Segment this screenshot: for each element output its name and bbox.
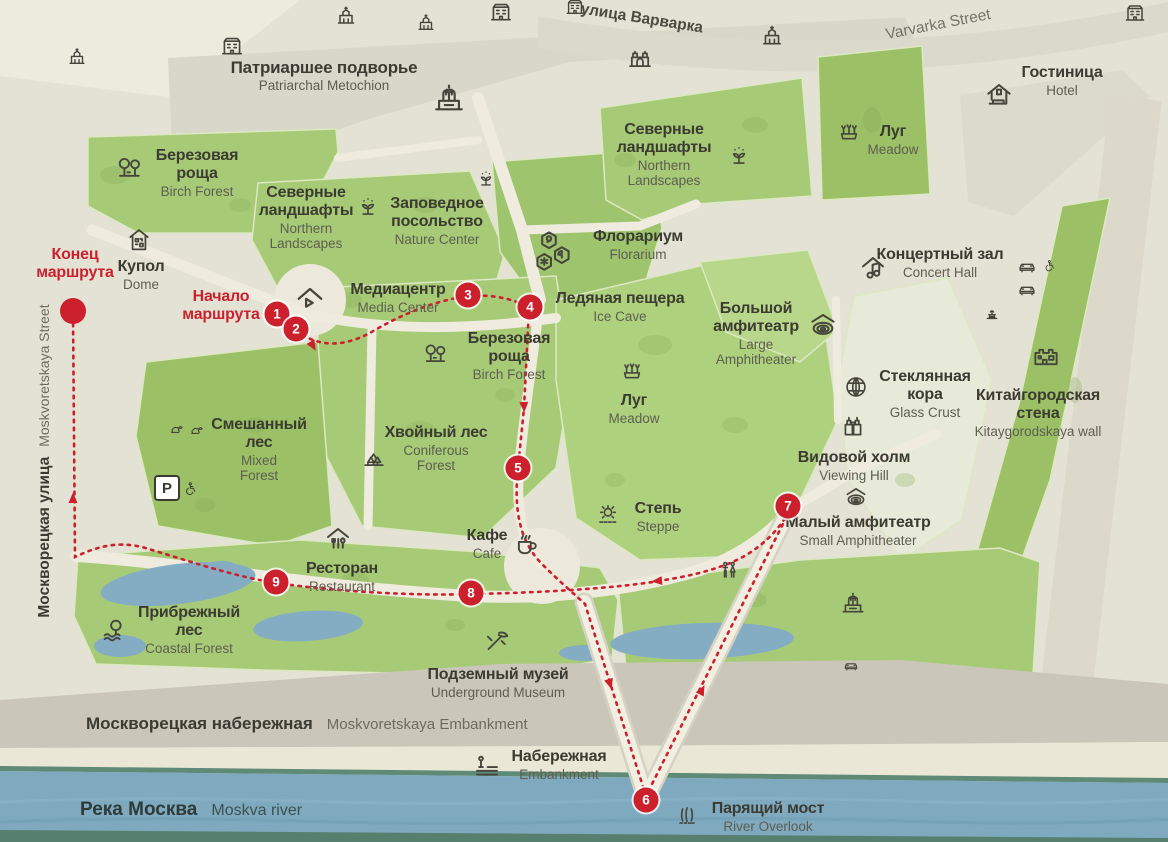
cathedral-icon xyxy=(432,81,466,115)
wc-icon xyxy=(717,559,741,583)
poi-embankment: НабережнаяEmbankment xyxy=(512,748,607,782)
car-icon xyxy=(1016,279,1038,301)
route-marker-5[interactable]: 5 xyxy=(506,456,531,481)
poi-meadow-ne: ЛугMeadow xyxy=(867,123,918,157)
poi-birch-forest-center: Березовая рощаBirch Forest xyxy=(454,330,564,382)
zaryadye-park-map: P улица Варварка Varvarka Street Москвор… xyxy=(0,0,1168,842)
church-icon xyxy=(66,45,88,67)
meadow-flowers-icon xyxy=(836,119,862,145)
poi-underground-museum: Подземный музейUnderground Museum xyxy=(427,666,568,700)
fortress-wall-icon xyxy=(1031,341,1061,371)
route-marker-6[interactable]: 6 xyxy=(634,788,659,813)
building-icon xyxy=(1123,0,1147,24)
building-icon xyxy=(219,32,245,58)
route-marker-3[interactable]: 3 xyxy=(456,283,481,308)
parking-icon: P xyxy=(154,475,180,501)
poi-coastal-forest: Прибрежный лесCoastal Forest xyxy=(124,604,254,656)
poi-dome: КуполDome xyxy=(118,258,165,292)
route-end-point xyxy=(60,298,86,324)
church-icon xyxy=(840,590,866,616)
sprout-icon xyxy=(726,143,752,169)
binoculars-icon xyxy=(839,413,867,441)
route-marker-4[interactable]: 4 xyxy=(518,295,543,320)
media-play-icon xyxy=(292,283,328,319)
poi-birch-forest-nw: Березовая рощаBirch Forest xyxy=(142,147,252,199)
wheelchair-icon xyxy=(1043,259,1058,274)
poi-viewing-hill: Видовой холмViewing Hill xyxy=(798,449,910,483)
wheelchair-icon xyxy=(183,481,200,498)
poi-hotel: ГостиницаHotel xyxy=(1021,64,1102,98)
restaurant-cutlery-icon xyxy=(322,523,354,555)
poi-steppe: СтепьSteppe xyxy=(635,500,682,534)
gate-icon xyxy=(626,44,654,72)
wildlife-icon xyxy=(168,420,186,438)
building-icon xyxy=(488,0,514,24)
nature-hexagons-icon xyxy=(528,229,574,275)
route-marker-8[interactable]: 8 xyxy=(459,581,484,606)
poi-large-amphitheater: Большой амфитеатрLarge Amphitheater xyxy=(691,300,821,367)
bridge-reeds-icon xyxy=(674,803,700,829)
birch-trees-icon xyxy=(115,152,145,182)
poi-river-overlook: Парящий мостRiver Overlook xyxy=(712,800,824,834)
birch-trees-icon xyxy=(422,339,450,367)
car-icon xyxy=(842,657,860,675)
church-icon xyxy=(334,3,358,27)
poi-northern-landscapes-ne: Северные ландшафтыNorthern Landscapes xyxy=(604,121,724,188)
street-moskvoretskaya: Москворецкая улицаMoskvoretskaya Street xyxy=(36,241,54,681)
route-marker-9[interactable]: 9 xyxy=(264,570,289,595)
sprout-icon xyxy=(475,168,497,190)
poi-ice-cave: Ледяная пещераIce Cave xyxy=(556,290,685,324)
poi-media-center: МедиацентрMedia Center xyxy=(350,281,445,315)
poi-florarium: ФлорариумFlorarium xyxy=(593,228,683,262)
fountain-icon xyxy=(981,306,1003,328)
poi-nature-center: Заповедное посольствоNature Center xyxy=(362,195,512,247)
route-marker-2[interactable]: 2 xyxy=(284,317,309,342)
hotel-icon xyxy=(983,77,1015,109)
poi-coniferous-forest: Хвойный лесConiferous Forest xyxy=(381,424,491,473)
poi-concert-hall: Концертный залConcert Hall xyxy=(875,246,1005,280)
dome-qr-icon xyxy=(125,226,153,254)
poi-meadow-center: ЛугMeadow xyxy=(608,392,659,426)
car-icon xyxy=(1016,256,1038,278)
poi-small-amphitheater: Малый амфитеатрSmall Amphitheater xyxy=(785,514,930,548)
poi-mixed-forest: Смешанный лесMixed Forest xyxy=(199,416,319,483)
poi-restaurant: РесторанRestaurant xyxy=(306,560,378,594)
embankment-lamp-icon xyxy=(472,752,502,782)
poi-kitaygorodskaya-wall: Китайгородская стенаKitaygorodskaya wall xyxy=(953,387,1123,439)
route-end-label: Конец маршрута xyxy=(29,246,121,282)
street-moskvoretskaya-embankment: Москворецкая набережнаяMoskvoretskaya Em… xyxy=(86,714,528,734)
poi-northern-landscapes-w: Северные ландшафтыNorthern Landscapes xyxy=(246,184,366,251)
steppe-sun-icon xyxy=(595,502,621,528)
river-label: Река МоскваMoskva river xyxy=(80,799,302,821)
route-marker-7[interactable]: 7 xyxy=(776,494,801,519)
poi-patriarchal-metochion: Патриаршее подворьеPatriarchal Metochion xyxy=(231,58,418,93)
amphitheater-icon xyxy=(843,484,869,510)
church-icon xyxy=(415,11,437,33)
coffee-cup-icon xyxy=(512,530,542,560)
meadow-flowers-icon xyxy=(619,358,645,384)
church-icon xyxy=(759,22,785,48)
route-start-label: Начало маршрута xyxy=(175,288,267,324)
poi-cafe: КафеCafe xyxy=(467,527,508,561)
museum-pickaxe-icon xyxy=(481,626,511,656)
